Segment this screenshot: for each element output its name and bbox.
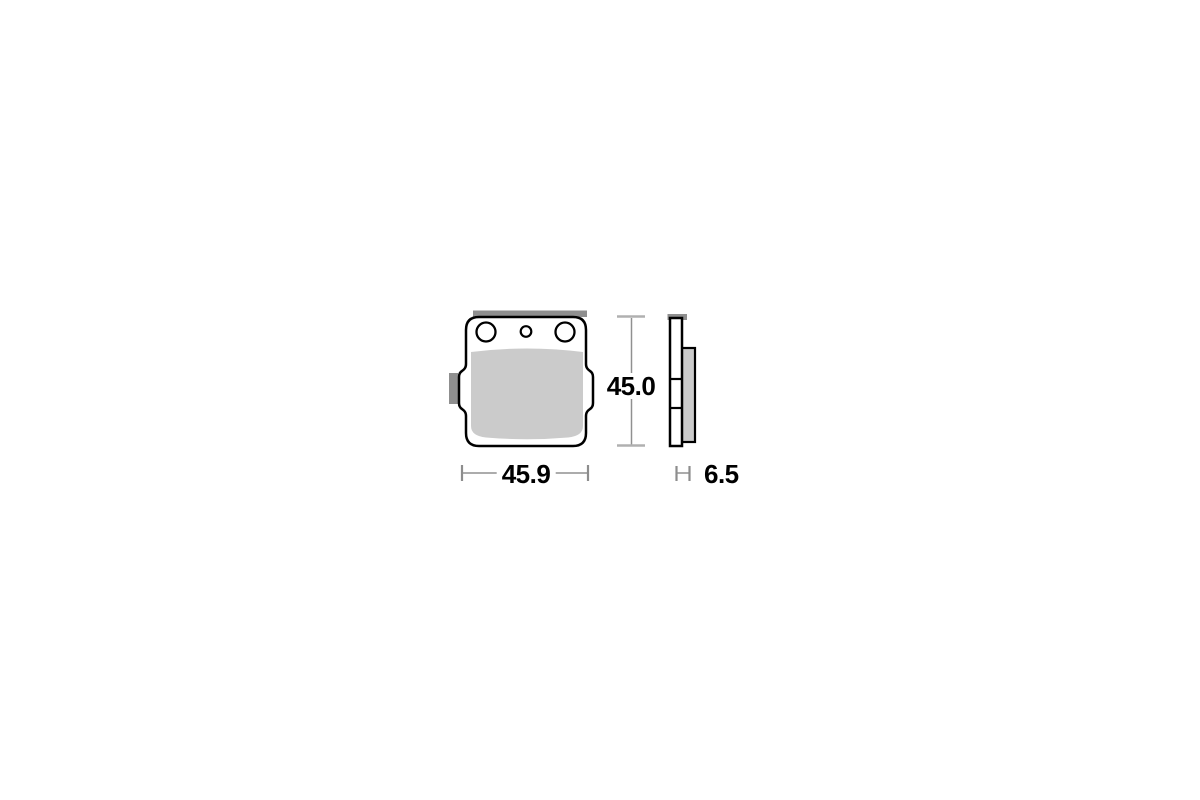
- drawing-figure: [0, 0, 1200, 800]
- brake-pad-technical-drawing: 45.0 45.9 6.5: [0, 0, 1200, 800]
- front-view: [449, 311, 593, 447]
- width-dimension-label: 45.9: [497, 461, 556, 487]
- front-friction-material: [471, 349, 583, 440]
- front-center-hole: [521, 326, 532, 337]
- side-backing-plate: [670, 318, 682, 446]
- front-left-hole: [477, 323, 496, 342]
- thickness-dimension: [677, 466, 690, 481]
- front-left-tab: [449, 373, 458, 404]
- side-view: [668, 314, 696, 446]
- front-right-hole: [556, 323, 575, 342]
- thickness-dimension-label: 6.5: [699, 461, 744, 487]
- height-dimension-label: 45.0: [602, 373, 661, 399]
